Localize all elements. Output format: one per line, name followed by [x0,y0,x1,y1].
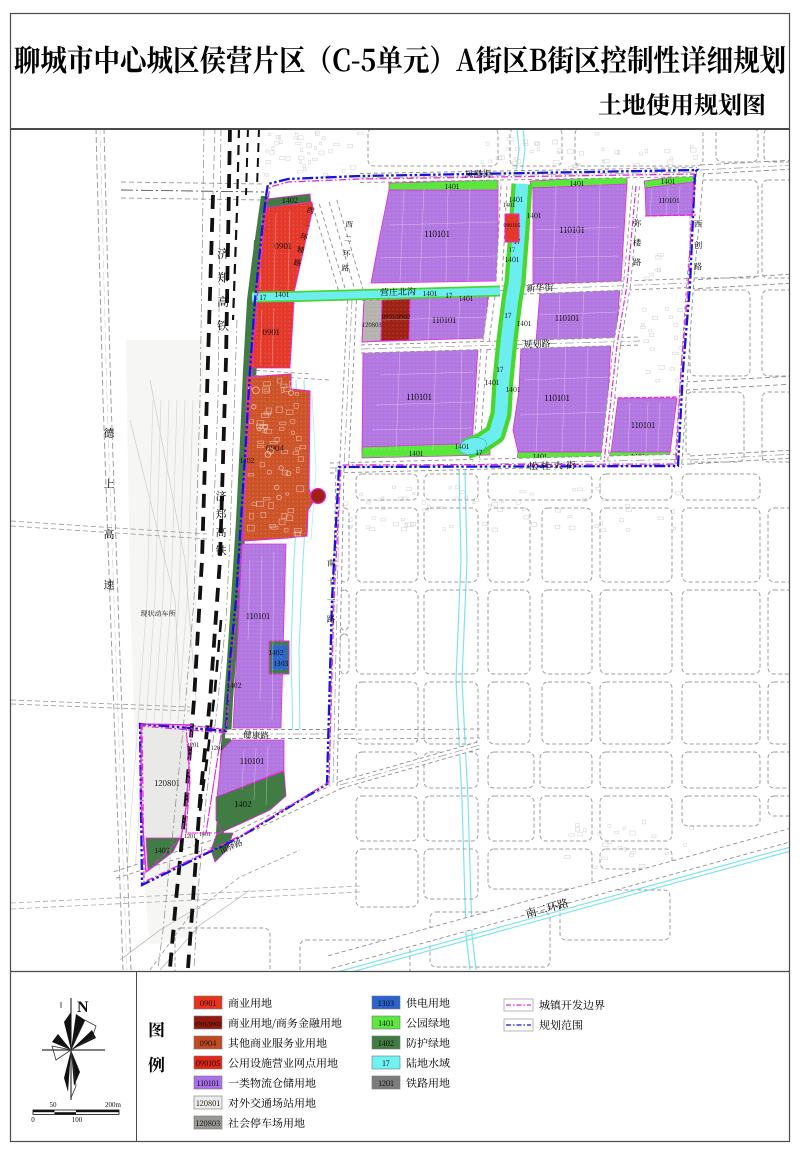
svg-text:‖: ‖ [60,1001,62,1010]
svg-text:200m: 200m [105,1101,122,1109]
svg-text:0: 0 [31,1116,35,1124]
svg-text:100: 100 [72,1116,83,1124]
svg-text:50: 50 [50,1101,58,1109]
svg-text:N: N [77,999,89,1016]
